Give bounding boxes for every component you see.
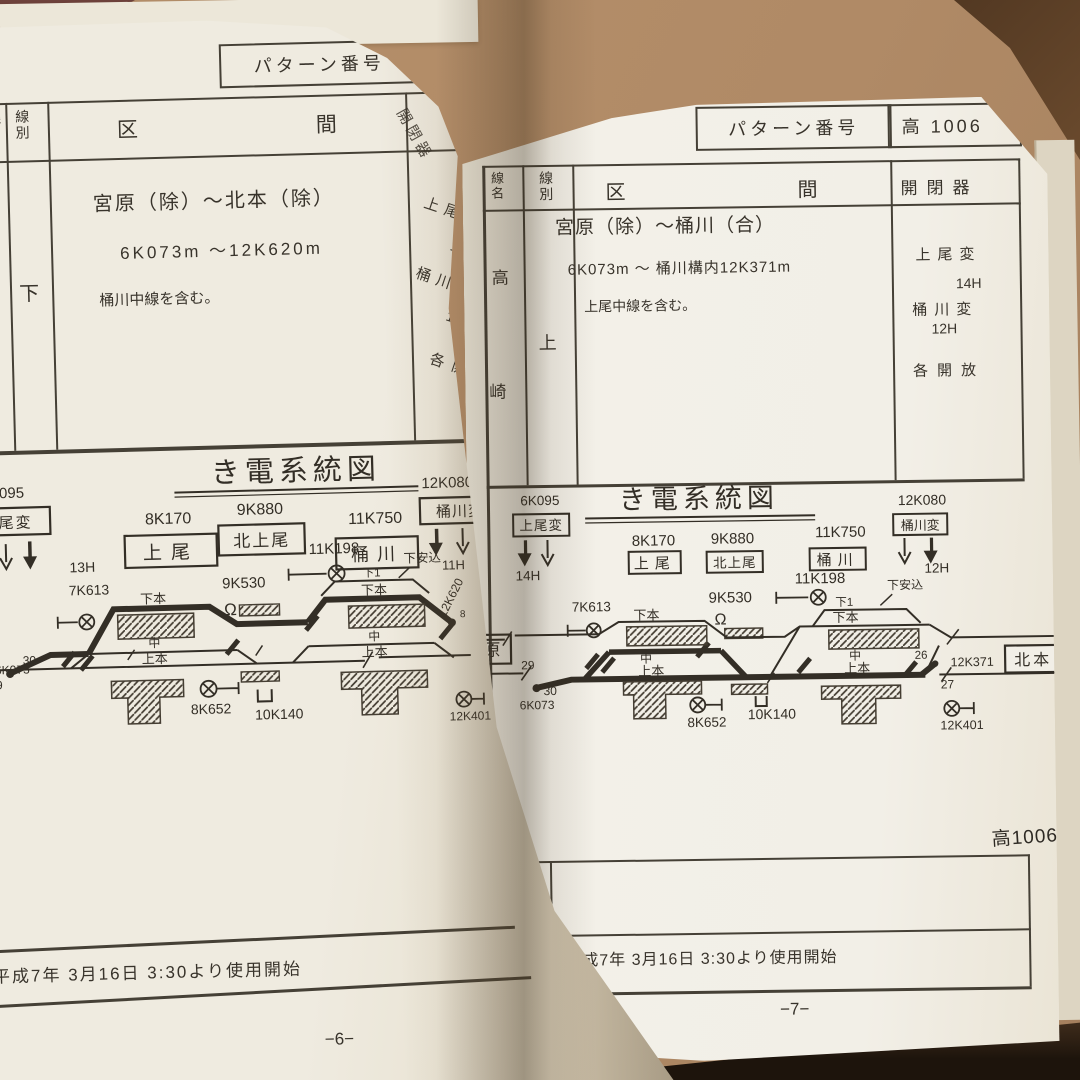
diagram-title: き電系統図: [210, 452, 381, 489]
photo-open-feeder-diagram-book: パターン番号 高 1006 線名 線別 区間 開閉器 高 崎 上 宮原（除）～桶…: [0, 0, 1080, 1080]
col-rule-1: [5, 103, 16, 451]
pattern-number-box-left: パターン番号: [219, 39, 420, 88]
table-header-rule: [0, 149, 475, 166]
table-right-rule: [1018, 158, 1024, 478]
section-title: 宮原（除）～桶川（合）: [555, 210, 775, 240]
switch-d-km: 12K401: [450, 708, 492, 723]
switch-symbol-icon: [776, 590, 826, 606]
switch-symbol-icon: [690, 697, 722, 712]
neutral-km: 9K530: [222, 574, 266, 592]
u-km: 10K140: [748, 706, 797, 723]
track-label-down-main: 下本: [633, 607, 659, 622]
track-label-up-main: 上本: [638, 663, 664, 678]
section-title: 宮原（除）～北本（除）: [92, 181, 335, 216]
small-hatch-mark: [731, 684, 767, 695]
station2-km: 9K880: [711, 530, 755, 548]
station3-km: 11K750: [815, 524, 866, 542]
pattern-number-label: パターン番号: [253, 49, 385, 78]
line-name-char1: 高: [492, 264, 509, 289]
u-km: 10K140: [255, 705, 304, 722]
feed-arrow-filled-icon: [524, 540, 527, 555]
handwritten-pattern-number: 高1006: [991, 820, 1059, 851]
switch-symbol-icon: [456, 691, 484, 707]
line-type-value: 下: [19, 277, 40, 307]
track-label-down-main2: 下本: [361, 582, 387, 598]
switch-c-km: 8K652: [687, 715, 726, 731]
section-note: 桶川中線を含む。: [99, 286, 220, 310]
shed-label: 下安込: [887, 577, 923, 593]
km-start: 6K073: [520, 698, 555, 712]
table-top-rule: [482, 158, 1020, 168]
col-rule-3: [890, 160, 896, 480]
track-label-up-main2: 上本: [844, 661, 870, 676]
switch-ss2-hours: 12H: [931, 320, 957, 336]
shed-label: 下安込: [403, 550, 441, 566]
station1-km: 8K170: [632, 532, 676, 550]
sub-left-hours: 13H: [69, 559, 95, 576]
feed-arrow-filled-icon: [28, 541, 32, 557]
num-27: 27: [941, 677, 955, 691]
station1-name: 上尾: [634, 555, 676, 573]
section-note: 上尾中線を含む。: [584, 295, 696, 317]
switch-b-km: 11K198: [795, 570, 846, 588]
switch-symbol-icon: [944, 701, 974, 716]
col-rule-2: [47, 102, 58, 450]
platform-lower-1: [623, 681, 702, 719]
feed-arrow-outline-icon: [541, 540, 553, 565]
track-label-down-main2: 下本: [832, 610, 858, 625]
col-rule-1: [522, 165, 528, 485]
km-end: 12K371: [951, 655, 994, 670]
pattern-number-value-box-right: 高 1006: [887, 102, 1022, 148]
footer-date: 平成7年 3月16日 3:30より使用開始: [0, 954, 302, 987]
station1-name: 上尾: [143, 541, 200, 564]
switch-c-km: 8K652: [191, 700, 232, 717]
header-line-type: 線別: [14, 109, 30, 141]
track-label-down1: 下1: [363, 567, 381, 579]
diagram-title: き電系統図: [619, 483, 779, 515]
switch-symbol-icon: [58, 614, 95, 630]
sub-left-km: 6K095: [0, 485, 24, 503]
u-mark-icon: [258, 689, 272, 701]
num-26: 26: [915, 650, 928, 662]
table-top-rule: [0, 91, 473, 108]
u-mark-icon: [756, 696, 767, 706]
header-line-name: 線名: [490, 172, 505, 201]
remarks-mid-rule: [493, 928, 1031, 938]
platform-lower-1: [111, 679, 184, 724]
switch-open-state: 各開放: [913, 359, 985, 381]
switch-ss2: 桶川変: [912, 298, 978, 320]
switch-ss1: 上尾変: [915, 243, 981, 265]
pattern-number-value-box-left: 高 10: [415, 35, 560, 83]
pattern-number-box-right: パターン番号: [695, 104, 892, 151]
switch-ss1-hours: 14H: [956, 275, 982, 291]
track-lines: [468, 607, 1059, 689]
station3-name: 桶川: [817, 552, 859, 570]
station3-km: 11K750: [348, 510, 403, 528]
footer-rule-top: [0, 926, 515, 956]
header-line-name: 線名: [0, 112, 2, 141]
feed-arrow-outline-icon: [898, 538, 910, 563]
station2-km: 9K880: [237, 501, 284, 519]
track-label-middle2: 中: [368, 628, 380, 643]
platform-station1: [627, 626, 707, 646]
num-29: 29: [521, 658, 535, 672]
neutral-km: 9K530: [708, 589, 752, 607]
station1-km: 8K170: [145, 510, 192, 528]
platform-lower-2: [822, 685, 902, 724]
feed-arrow-filled-icon: [930, 538, 933, 553]
feeder-diagram-right: き電系統図 6K095 上尾変 14H 8K170 上尾 9K880 北上尾 1…: [467, 476, 1062, 879]
switch-d-km: 12K401: [940, 718, 983, 733]
sub-right-hours: 11H: [442, 557, 465, 573]
platform-lower-2: [341, 670, 428, 715]
num-30: 30: [543, 684, 557, 698]
station2-name: 北上尾: [233, 531, 290, 551]
sub-right-name: 桶川変: [901, 518, 940, 534]
station2-name: 北上尾: [713, 555, 757, 571]
header-section: 区間: [577, 172, 915, 206]
sub-right-hours: 12H: [924, 560, 949, 575]
feed-arrow-outline-icon: [456, 528, 469, 553]
header-switch: 開閉器: [900, 173, 978, 199]
sub-left-name: 上尾変: [0, 514, 33, 532]
header-section: 区間: [59, 105, 448, 145]
line-type-value: 上: [538, 329, 556, 355]
pattern-number-value: 高 10: [417, 46, 487, 74]
header-line-type: 線別: [538, 171, 554, 203]
page-number-left: −6−: [325, 1029, 355, 1050]
pattern-number-label: パターン番号: [728, 114, 859, 142]
num-8: 8: [460, 609, 466, 620]
small-hatch-mark: [241, 671, 279, 682]
sub-right-km: 12K080: [421, 474, 473, 492]
revision-date-value: 平成7年 3月16日 3:30より使用開始: [565, 943, 838, 971]
line-name-char2: 崎: [489, 378, 506, 403]
sub-right-km: 12K080: [898, 491, 947, 508]
section-range: 6K073m ～12K620m: [120, 234, 323, 264]
switch-a-km: 7K613: [68, 581, 109, 598]
right-station-box: 北本: [1014, 651, 1052, 670]
feed-arrow-outline-icon: [0, 544, 12, 569]
switch-symbol-icon: [200, 680, 238, 697]
feed-arrow-filled-icon: [435, 529, 439, 545]
platform-station3: [348, 604, 425, 628]
num-30: 30: [23, 653, 37, 667]
section-range: 6K073m ～ 桶川構内12K371m: [568, 256, 792, 280]
platform-station3: [829, 629, 919, 649]
remarks-right-rule: [1028, 854, 1032, 986]
track-label-up-main2: 上本: [361, 644, 387, 660]
sub-left-hours: 14H: [515, 568, 540, 583]
switch-a-km: 7K613: [572, 599, 611, 615]
track-label-down1: 下1: [835, 597, 853, 609]
omega-icon: Ω: [714, 612, 726, 629]
pattern-number-value: 高 1006: [890, 112, 983, 139]
track-label-down-main: 下本: [140, 591, 166, 607]
sub-left-km: 6K095: [520, 493, 559, 509]
track-label-middle: 中: [148, 635, 160, 650]
track-label-up-main: 上本: [142, 651, 168, 667]
page-number-right: −7−: [780, 999, 810, 1019]
num-29: 29: [0, 678, 3, 692]
switch-b-km: 11K198: [308, 540, 359, 558]
sub-left-name: 上尾変: [519, 517, 563, 534]
